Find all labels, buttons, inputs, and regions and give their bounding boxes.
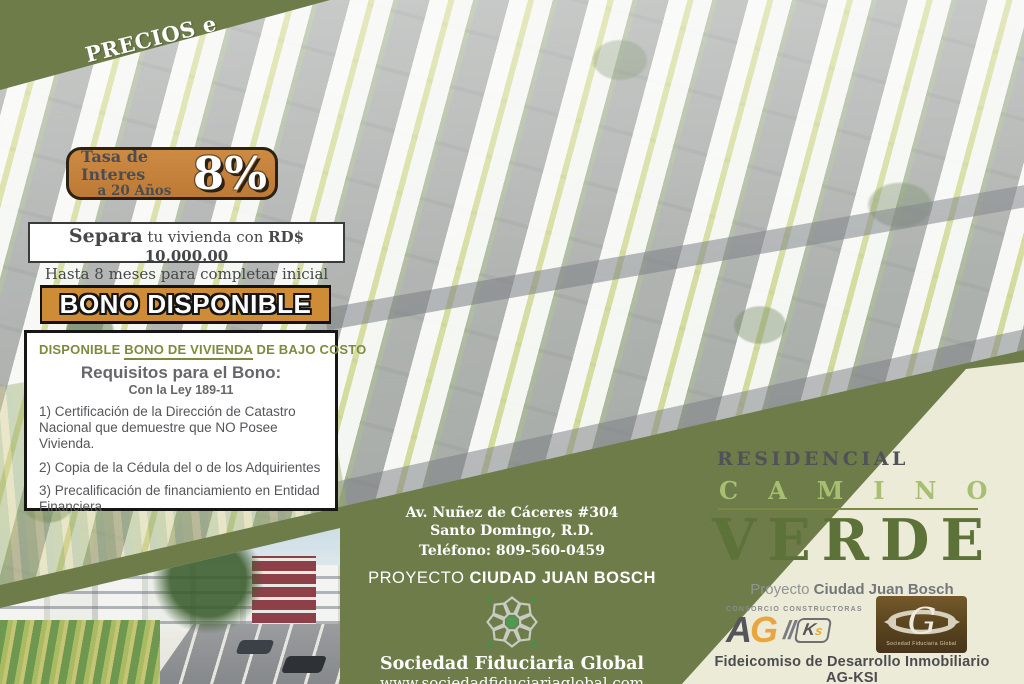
rate-text: Tasa de Interes a 20 Años [81, 148, 188, 198]
rate-subtitle: a 20 Años [98, 184, 172, 199]
reservation-mid: tu vivienda con [143, 228, 268, 246]
inset-car [235, 640, 274, 654]
ag-logo-row: A G // Ks [726, 615, 858, 646]
address-line1: Av. Nuñez de Cáceres #304 [340, 504, 684, 522]
ag-ks-logo: CONSORCIO CONSTRUCTORAS A G // Ks [726, 606, 858, 646]
requirements-title: Requisitos para el Bono: [39, 363, 323, 383]
requirements-panel: DISPONIBLE BONO DE VIVIENDA DE BAJO COST… [24, 330, 338, 511]
website-url: www.sociedadfiduciariaglobal.com [340, 674, 684, 684]
render-road [324, 184, 1024, 331]
inset-car [281, 656, 327, 673]
address-line2: Santo Domingo, R.D. [340, 522, 684, 540]
bono-subtitle-underlined: BONO DE VIVIENDA [124, 342, 252, 360]
fideicomiso-caption: Fideicomiso de Desarrollo Inmobiliario A… [702, 654, 1002, 684]
phone-line: Teléfono: 809-560-0459 [340, 542, 684, 560]
bono-subtitle-post: DE BAJO COSTO [253, 342, 367, 357]
g-emblem-icon: G [882, 603, 962, 643]
ks-letter-s: s [814, 623, 824, 638]
reservation-line1: Separa tu vivienda con RD$ 10,000.00 [30, 225, 343, 265]
requirement-item: 3) Precalificación de financiamiento en … [39, 483, 323, 515]
bono-subtitle-pre: DISPONIBLE [39, 342, 124, 357]
requirement-item: 2) Copia de la Cédula del o de los Adqui… [39, 460, 323, 476]
brand-proyecto-prefix: Proyecto [750, 581, 813, 598]
brand-residencial: RESIDENCIAL [717, 448, 1014, 470]
fiduciaria-g-logo: G Sociedad Fiduciaria Global [876, 596, 967, 653]
bono-subtitle: DISPONIBLE BONO DE VIVIENDA DE BAJO COST… [39, 342, 323, 357]
g-letter: G [907, 603, 936, 643]
reservation-lead: Separa [69, 225, 143, 247]
project-name: CIUDAD JUAN BOSCH [470, 569, 656, 587]
pinwheel-logo-icon [483, 593, 541, 651]
project-prefix: PROYECTO [368, 569, 469, 587]
requirements-law: Con la Ley 189-11 [39, 383, 323, 397]
brand-block: RESIDENCIAL CAMINO VERDE Proyecto Ciudad… [702, 448, 1014, 598]
flyer: PRECIOS e INFORMACIONES Tasa de Interes … [0, 0, 1024, 684]
bono-banner: BONO DISPONIBLE [40, 285, 331, 324]
project-title: PROYECTO CIUDAD JUAN BOSCH [340, 569, 684, 588]
brand-camino: CAMINO [719, 476, 1014, 505]
rate-value: 8% [193, 151, 267, 196]
g-logo-label: Sociedad Fiduciaria Global [886, 641, 956, 647]
brand-verde: VERDE [712, 512, 1014, 569]
ks-logo-box: Ks [794, 618, 832, 643]
contact-block: Av. Nuñez de Cáceres #304 Santo Domingo,… [340, 504, 684, 684]
ag-letter-g: G [750, 615, 778, 646]
reservation-line2: Hasta 8 meses para completar inicial [30, 265, 343, 283]
bono-banner-label: BONO DISPONIBLE [60, 289, 312, 320]
company-name: Sociedad Fiduciaria Global [340, 654, 684, 674]
interest-rate-badge: Tasa de Interes a 20 Años 8% [66, 147, 278, 200]
reservation-note: Separa tu vivienda con RD$ 10,000.00 Has… [28, 222, 345, 263]
inset-garden-rows [0, 620, 160, 684]
ag-letter-a: A [726, 615, 752, 646]
ag-slashes: // [783, 615, 793, 646]
rate-title: Tasa de Interes [81, 148, 188, 183]
requirement-item: 1) Certificación de la Dirección de Cata… [39, 404, 323, 453]
